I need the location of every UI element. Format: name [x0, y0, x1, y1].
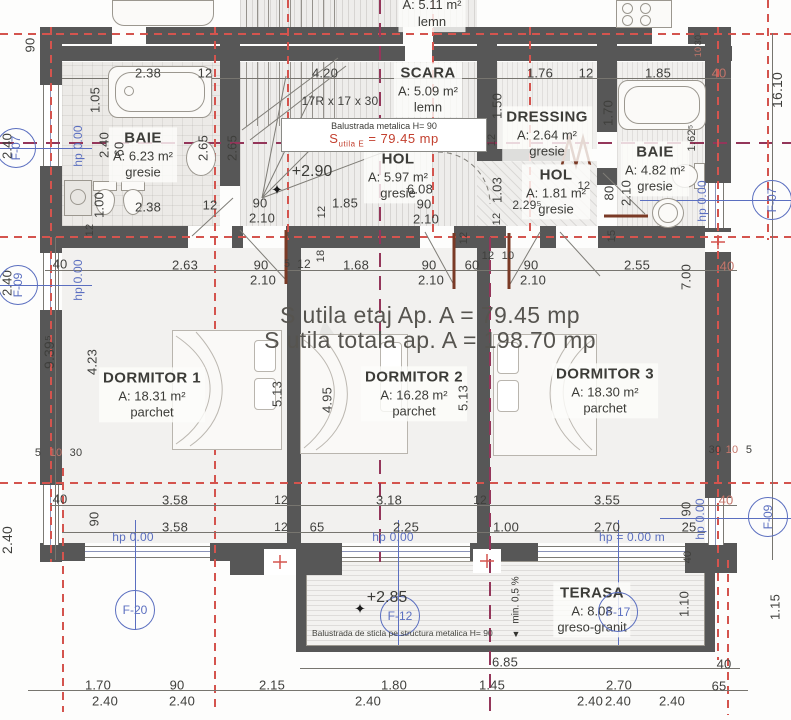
terasa-border-right	[705, 561, 715, 652]
balustrade-glass-note: Balustrada de sticla pe structura metali…	[312, 628, 493, 638]
hp-level-label: hp 0.00	[695, 180, 709, 221]
dimension-label: 2.38	[135, 66, 161, 81]
dimension-label: 2.65	[196, 135, 211, 161]
grid-marker-f-07: F-07	[752, 180, 791, 220]
dimension-label: 1.50	[490, 93, 505, 119]
dimension-label: 6.08	[407, 182, 433, 197]
dimension-label: 12	[274, 520, 288, 534]
wall-notch	[264, 549, 296, 575]
grid-marker-f-09: F-09	[748, 497, 788, 537]
dimension-label: 2.65	[225, 135, 240, 161]
grid-marker-f-20: F-20	[115, 590, 155, 630]
grid-marker-f-09: F-09	[0, 265, 38, 305]
window-right-baie	[708, 183, 724, 228]
wall-top	[433, 27, 652, 44]
room-name: DORMITOR 2	[365, 367, 463, 387]
room-name: DRESSING	[506, 107, 588, 127]
dimension-label: 1.10	[677, 591, 692, 617]
window-dormitor3	[538, 546, 685, 558]
hp-level-label: hp 0.00	[71, 125, 85, 166]
dimension-label: 2.10	[249, 211, 275, 226]
room-name: DORMITOR 3	[556, 364, 654, 384]
dimension-label: 17R x 17 x 30	[302, 94, 379, 108]
room-area: A: 18.31 m²	[103, 388, 201, 405]
room-floor-finish: lemn	[402, 14, 461, 31]
dimension-label: 2.29⁵	[512, 198, 541, 212]
room-name: HOL	[368, 149, 428, 169]
dimension-label: 2.40	[577, 694, 603, 709]
dimension-label: 3.18	[376, 493, 402, 508]
dimension-label: 40	[682, 551, 694, 564]
dimension-label: 2.10	[520, 273, 546, 288]
grid-marker-f-07: F-07	[0, 128, 36, 168]
room-floor-finish: parchet	[365, 404, 463, 421]
dimension-label: 5	[284, 258, 290, 270]
dim-line	[772, 33, 773, 560]
dim-line	[55, 237, 56, 560]
dimension-label: 2.40	[0, 526, 15, 554]
dimension-label: 1.62⁵	[686, 125, 698, 152]
terasa-border-bottom	[296, 646, 715, 652]
dimension-label: 30	[693, 35, 703, 45]
dimension-label: 2.70	[606, 678, 632, 693]
axis-line	[50, 27, 52, 562]
dimension-label: 10	[726, 444, 739, 456]
dimension-label: 1.80	[381, 678, 407, 693]
survey-point-icon: ✦	[271, 182, 283, 199]
dimension-label: 2.10	[418, 273, 444, 288]
dimension-label: 2.10	[619, 180, 634, 206]
sink-baie-right-inner	[658, 203, 678, 223]
dimension-label: 40	[720, 259, 735, 274]
dimension-label: 2.40	[92, 694, 118, 709]
dimension-label: 2.38	[135, 200, 161, 215]
room-area: A: 18.30 m²	[556, 384, 654, 401]
dimension-label: 90	[87, 512, 102, 527]
dimension-label: 12	[198, 66, 213, 81]
wall-notch	[473, 549, 501, 573]
room-label-room: A: 5.11 m²lemn	[398, 0, 465, 32]
dimension-label: 40	[53, 257, 68, 272]
room-area: A: 2.64 m²	[506, 127, 588, 144]
dimension-label: 2.40	[355, 694, 381, 709]
dimension-label: 1.00	[493, 520, 519, 535]
room-label-scara: SCARAA: 5.09 m²lemn	[394, 62, 462, 117]
axis-line	[717, 27, 719, 660]
dimension-label: 2.40	[97, 132, 112, 158]
dimension-label: 40	[712, 66, 727, 81]
balustrade-metal-note: Balustrada metalica H= 90	[286, 121, 482, 131]
axis-line	[379, 0, 381, 562]
hp-level-label: hp 0.00	[372, 530, 413, 544]
room-floor-finish: parchet	[556, 401, 654, 418]
room-floor-finish: gresie	[506, 144, 588, 161]
slope-arrow-icon: ▼	[512, 629, 521, 639]
room-area: A: 5.11 m²	[402, 0, 461, 14]
dimension-label: 12	[84, 224, 96, 237]
dimension-label: 90	[253, 196, 268, 211]
dimension-label: 10	[693, 47, 703, 57]
dimension-label: 12	[274, 493, 288, 507]
bathtub-drain	[124, 86, 134, 96]
axis-line	[727, 560, 729, 715]
dimension-label: 12	[297, 257, 311, 271]
stove-burner	[622, 3, 633, 14]
room-name: BAIE	[625, 142, 685, 162]
window-dormitor2	[342, 546, 470, 558]
dimension-label: 80	[602, 186, 617, 201]
wall-dressing-baie	[597, 168, 617, 185]
dimension-label: 90	[524, 258, 539, 273]
pillow	[497, 380, 519, 412]
summary-line-1: S utila etaj Ap. A = 79.45 mp	[280, 302, 580, 329]
dimension-label: 60	[465, 258, 480, 273]
dimension-label: 90	[417, 197, 432, 212]
dimension-label: 12	[578, 180, 591, 192]
axis-line	[0, 33, 791, 35]
dimension-label: 90	[679, 502, 694, 517]
grid-marker-f-17: F-17	[598, 592, 638, 632]
dimension-label: 1.05	[88, 87, 103, 113]
dimension-label: 4.95	[320, 387, 335, 413]
dimension-label: 12	[458, 232, 470, 245]
stair-treads-top	[246, 0, 342, 27]
hp-level-label: hp 0.00	[71, 259, 85, 300]
bathtub-baie-right-inner	[624, 86, 700, 124]
room-name: SCARA	[398, 63, 458, 83]
wall-top	[146, 27, 403, 44]
dimension-label: 2.40	[169, 694, 195, 709]
terasa-border-left	[296, 561, 306, 652]
dimension-label: 12	[491, 213, 503, 226]
dimension-label: 40	[719, 493, 734, 508]
room-floor-finish: gresie	[625, 179, 685, 196]
hp-level-label: hp = 0.00 m	[599, 530, 665, 544]
dimension-label: 1.15	[768, 594, 783, 620]
dimension-label: 30	[709, 444, 722, 456]
level-label: +2.90	[292, 163, 332, 181]
dimension-label: 5.13	[270, 381, 285, 407]
dimension-label: 2.40	[605, 694, 631, 709]
dimension-label: 2.63	[172, 258, 198, 273]
dimension-label: 12	[203, 198, 218, 213]
dimension-label: 5.13	[456, 385, 471, 411]
dimension-label: 7.00	[679, 264, 694, 290]
dimension-label: 12	[486, 134, 498, 147]
dimension-label: 90	[254, 258, 269, 273]
room-area: A: 5.09 m²	[398, 83, 458, 100]
dimension-label: 2.10	[250, 273, 276, 288]
room-floor-finish: parchet	[103, 405, 201, 422]
room-area: A: 4.82 m²	[625, 162, 685, 179]
dimension-label: 1.70	[85, 678, 111, 693]
level-label: +2.85	[367, 589, 407, 607]
dimension-label: 4.20	[312, 66, 338, 81]
dimension-label: 12	[579, 66, 594, 81]
dimension-label: 1.76	[527, 66, 553, 81]
room-label-dormitor-1: DORMITOR 1A: 18.31 m²parchet	[99, 367, 205, 422]
dimension-label: 1.68	[343, 258, 369, 273]
room-label-dormitor-2: DORMITOR 2A: 16.28 m²parchet	[361, 366, 467, 421]
room-floor-finish: lemn	[398, 100, 458, 117]
dimension-label: 1.00	[92, 192, 107, 218]
room-floor-finish: gresie	[113, 165, 173, 182]
dimension-label: 3.58	[162, 493, 188, 508]
wall-baie-scara	[220, 27, 240, 186]
bathtub-top-floor	[112, 0, 214, 26]
stove-burner	[640, 3, 651, 14]
summary-line-2: S utila totala ap. A = 198.70 mp	[264, 327, 596, 354]
dimension-label: 2.55	[624, 258, 650, 273]
dimension-label: 9.39⁵	[41, 335, 57, 369]
dimension-label: 40	[717, 657, 732, 672]
axis-line	[0, 482, 791, 484]
stove-burner	[622, 15, 633, 26]
dimension-label: 1.03	[490, 177, 505, 203]
balustrade-note-box: Balustrada metalica H= 90 Sutila E = 79.…	[281, 118, 487, 152]
dimension-label: 1.85	[332, 196, 358, 211]
slope-note: min. 0,5 %	[511, 576, 522, 623]
dimension-label: 16.10	[769, 72, 785, 108]
washer-door	[70, 189, 86, 205]
room-label-dressing: DRESSINGA: 2.64 m²gresie	[502, 106, 592, 161]
dim-line	[300, 668, 740, 669]
room-label-dormitor-3: DORMITOR 3A: 18.30 m²parchet	[552, 363, 658, 418]
survey-point-icon: ✦	[354, 601, 366, 618]
dimension-label: 30	[70, 447, 83, 459]
dimension-label: 90	[422, 258, 437, 273]
axis-line	[0, 236, 791, 238]
dimension-label: 60	[112, 142, 127, 157]
dimension-label: 2.15	[259, 678, 285, 693]
floor-plan: △	[0, 0, 791, 720]
dimension-label: 15	[606, 230, 618, 243]
dimension-label: 2.10	[413, 212, 439, 227]
dimension-label: 5	[35, 447, 41, 459]
dimension-label: 90	[23, 38, 38, 53]
dimension-label: 3.58	[162, 520, 188, 535]
dimension-label: 12	[316, 206, 328, 219]
dimension-label: 1.70	[601, 100, 616, 126]
room-area: A: 16.28 m²	[365, 387, 463, 404]
dimension-label: 12	[482, 250, 495, 262]
dimension-label: 40	[53, 492, 68, 507]
room-name: DORMITOR 1	[103, 368, 201, 388]
dimension-label: 90	[170, 678, 185, 693]
dimension-label: 5	[746, 444, 752, 456]
dimension-label: 2.40	[659, 694, 685, 709]
dimension-label: 6.85	[492, 655, 518, 670]
dimension-label: 65	[712, 679, 727, 694]
hp-level-label: hp 0.00	[693, 498, 707, 539]
window-dormitor1	[85, 546, 210, 558]
stove-burner	[640, 15, 651, 26]
dimension-label: 12	[473, 493, 487, 507]
dimension-label: 4.23	[85, 349, 100, 375]
dimension-label: 10	[502, 250, 515, 262]
dimension-label: 1.85	[645, 66, 671, 81]
useful-area-red-note: Sutila E = 79.45 mp	[286, 131, 482, 149]
dimension-label: 3.55	[594, 493, 620, 508]
wall-dormitor1-2	[287, 226, 301, 546]
dimension-label: 65	[310, 520, 325, 535]
dimension-label: 10	[50, 447, 63, 459]
dimension-label: 18	[315, 250, 327, 263]
dimension-label: 1.45	[479, 678, 505, 693]
hp-level-label: hp 0.00	[112, 530, 153, 544]
